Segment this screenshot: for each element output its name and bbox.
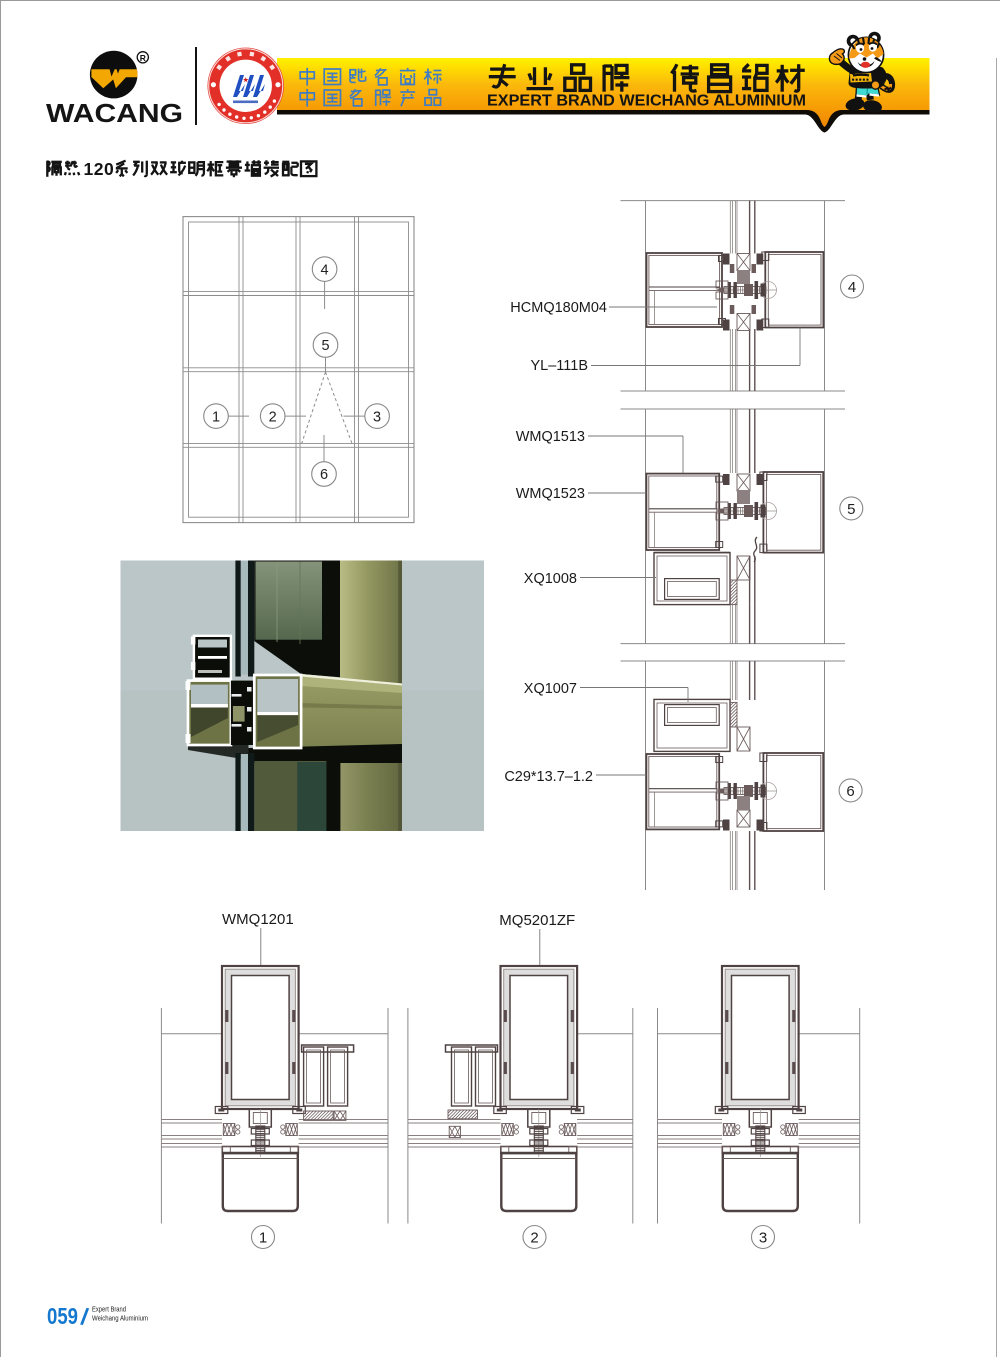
svg-text:2: 2	[269, 409, 277, 425]
svg-text:6: 6	[846, 783, 854, 800]
svg-text:5: 5	[321, 338, 329, 354]
svg-text:Expert Brand: Expert Brand	[92, 1305, 126, 1314]
svg-text:WMQ1201: WMQ1201	[222, 911, 294, 928]
svg-text:XQ1008: XQ1008	[524, 571, 577, 587]
svg-text:WMQ1513: WMQ1513	[516, 429, 585, 445]
svg-text:YL–111B: YL–111B	[530, 358, 588, 374]
svg-text:2: 2	[530, 1229, 538, 1246]
svg-text:5: 5	[847, 501, 855, 518]
svg-text:1: 1	[259, 1229, 267, 1246]
svg-text:C29*13.7–1.2: C29*13.7–1.2	[504, 769, 593, 785]
svg-text:1: 1	[212, 409, 220, 425]
svg-text:3: 3	[759, 1229, 767, 1246]
svg-text:WACANG: WACANG	[46, 98, 183, 128]
svg-text:HCMQ180M04: HCMQ180M04	[510, 300, 607, 316]
svg-text:XQ1007: XQ1007	[524, 681, 577, 697]
svg-text:WMQ1523: WMQ1523	[516, 486, 585, 502]
svg-text:Weichang Aluminium: Weichang Aluminium	[92, 1314, 148, 1323]
svg-text:3: 3	[373, 409, 381, 425]
svg-text:4: 4	[321, 262, 329, 278]
svg-text:059: 059	[47, 1303, 78, 1329]
svg-text:120: 120	[84, 159, 115, 179]
svg-text:4: 4	[848, 279, 856, 296]
svg-text:MQ5201ZF: MQ5201ZF	[499, 912, 575, 929]
svg-text:R: R	[140, 53, 146, 63]
svg-text:6: 6	[320, 467, 328, 483]
svg-text:EXPERT BRAND WEICHANG ALUMINIU: EXPERT BRAND WEICHANG ALUMINIUM	[487, 93, 806, 110]
